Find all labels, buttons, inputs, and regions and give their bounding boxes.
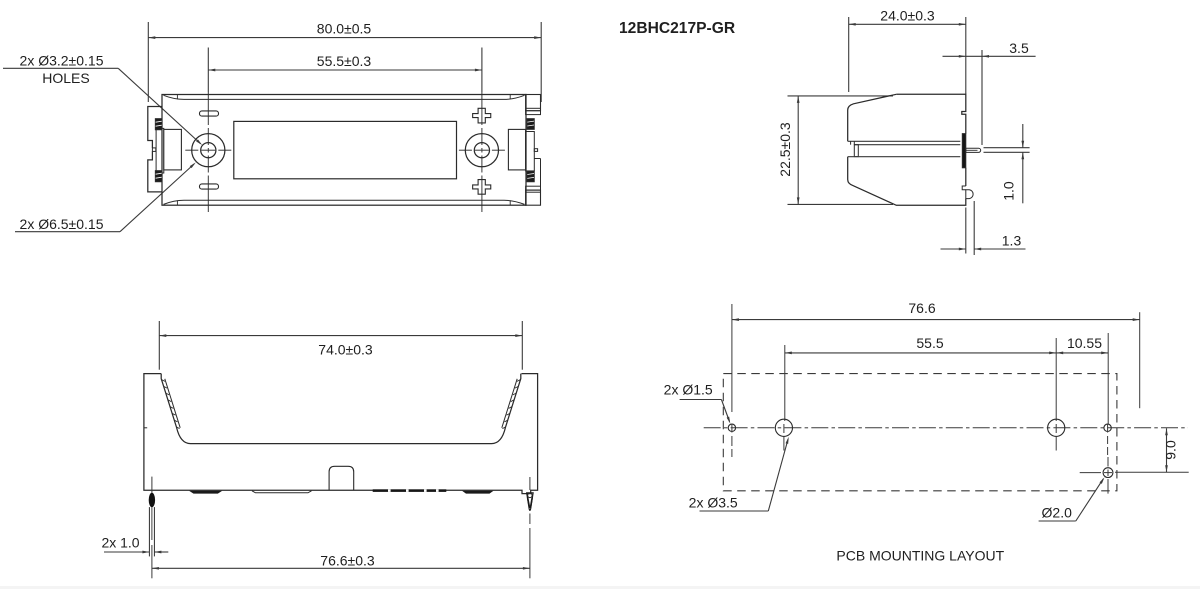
- svg-text:2x Ø6.5±0.15: 2x Ø6.5±0.15: [20, 216, 104, 232]
- svg-text:1.0: 1.0: [1000, 181, 1016, 201]
- svg-text:2x Ø1.5: 2x Ø1.5: [664, 382, 713, 398]
- svg-text:80.0±0.5: 80.0±0.5: [317, 21, 372, 37]
- svg-text:24.0±0.3: 24.0±0.3: [880, 8, 935, 24]
- svg-text:10.55: 10.55: [1067, 335, 1102, 351]
- svg-text:76.6: 76.6: [908, 300, 935, 316]
- svg-text:55.5: 55.5: [916, 335, 943, 351]
- svg-text:76.6±0.3: 76.6±0.3: [320, 552, 375, 568]
- svg-text:3.5: 3.5: [1009, 40, 1029, 56]
- svg-text:PCB MOUNTING LAYOUT: PCB MOUNTING LAYOUT: [836, 547, 1004, 563]
- svg-text:22.5±0.3: 22.5±0.3: [777, 122, 793, 177]
- svg-text:9.0: 9.0: [1162, 440, 1178, 460]
- svg-text:HOLES: HOLES: [42, 70, 89, 86]
- svg-text:1.3: 1.3: [1002, 233, 1022, 249]
- svg-text:74.0±0.3: 74.0±0.3: [318, 342, 373, 358]
- svg-text:2x Ø3.5: 2x Ø3.5: [689, 495, 738, 511]
- svg-text:2x Ø3.2±0.15: 2x Ø3.2±0.15: [20, 52, 104, 68]
- svg-text:2x 1.0: 2x 1.0: [101, 534, 139, 550]
- svg-text:Ø2.0: Ø2.0: [1042, 505, 1073, 521]
- svg-text:55.5±0.3: 55.5±0.3: [317, 53, 372, 69]
- svg-text:12BHC217P-GR: 12BHC217P-GR: [619, 20, 735, 37]
